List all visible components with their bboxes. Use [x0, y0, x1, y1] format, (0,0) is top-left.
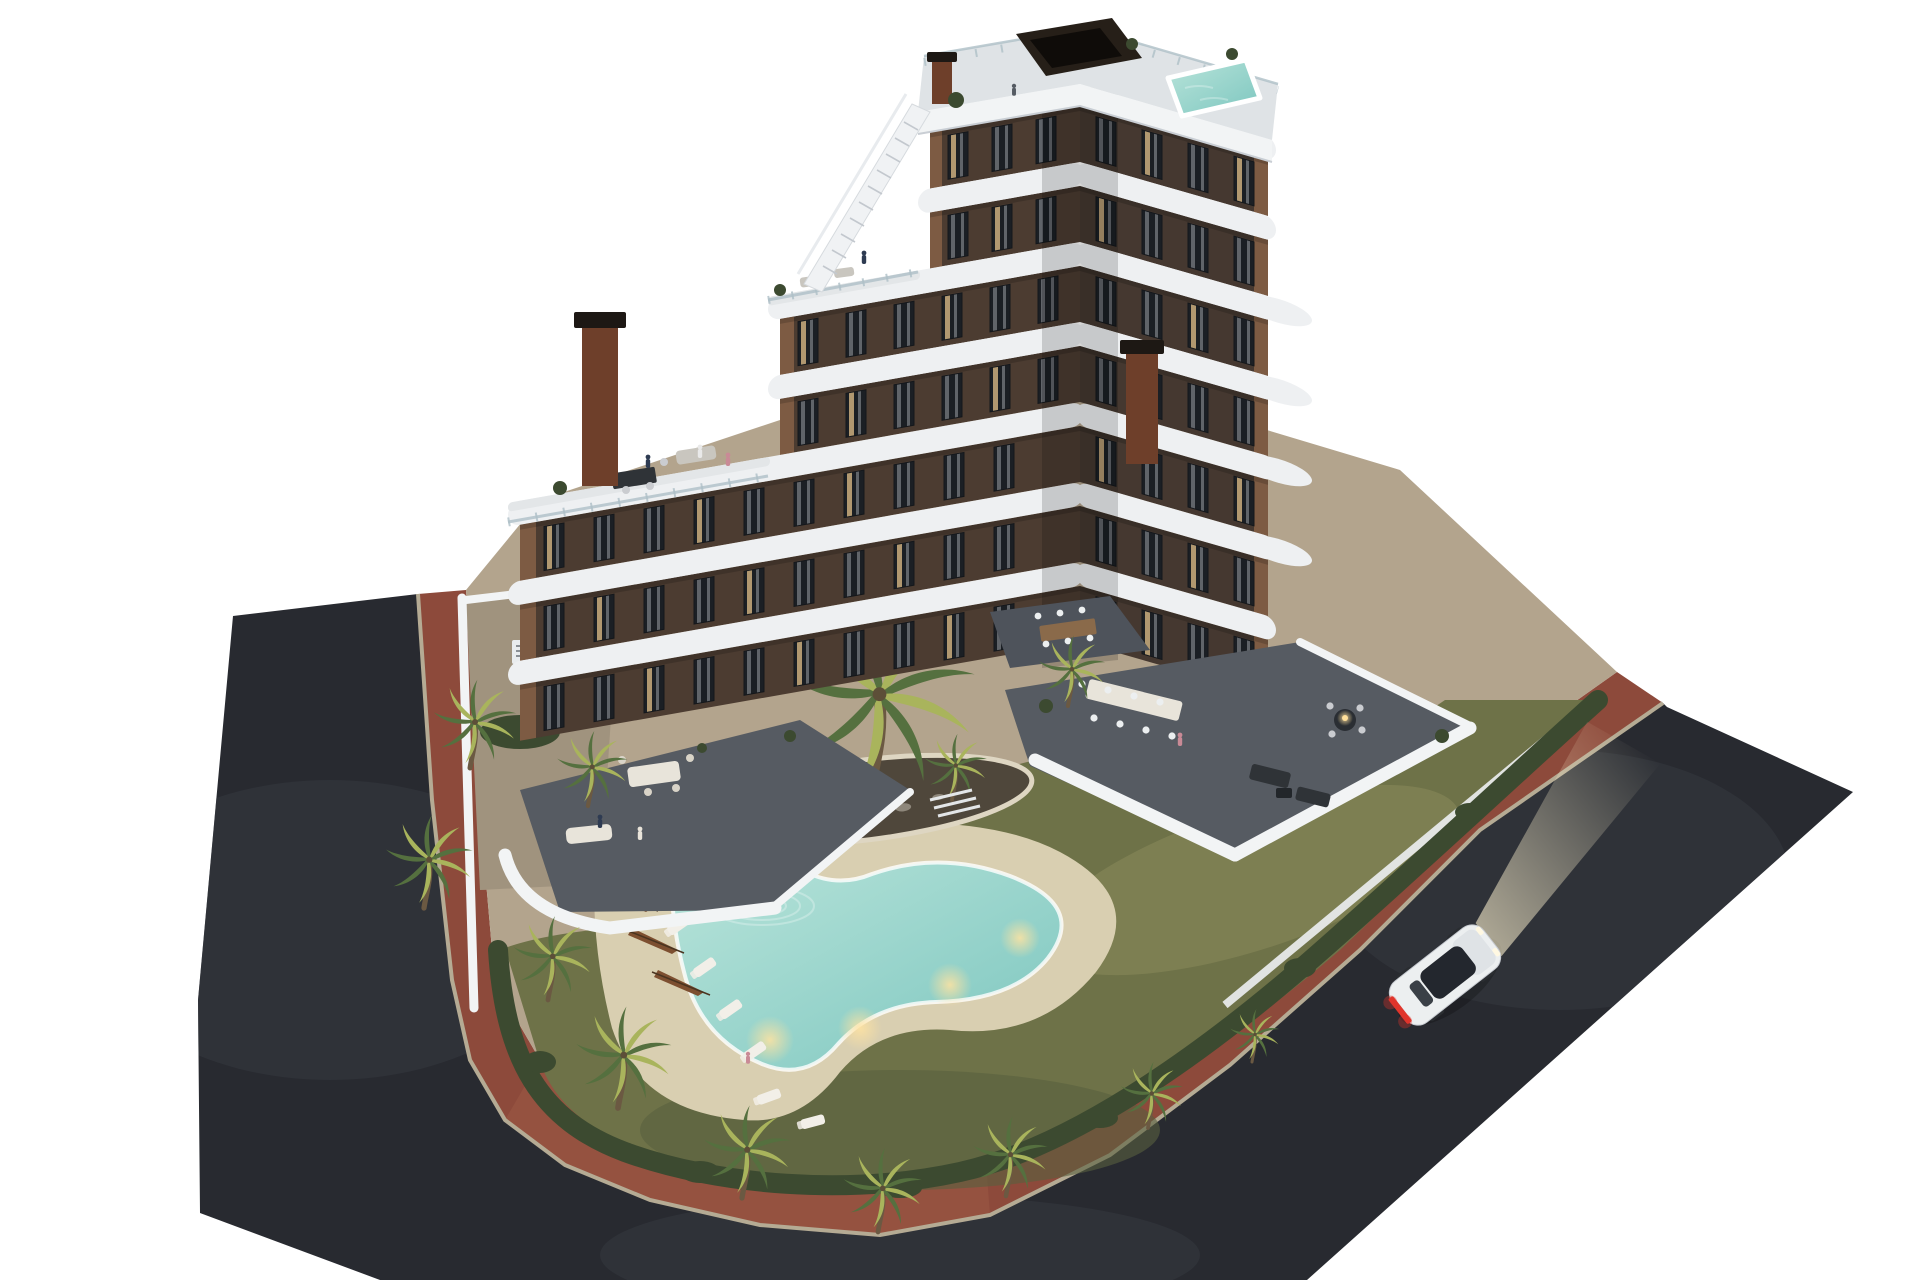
- coffee-table: [1276, 788, 1292, 798]
- person: [1178, 733, 1183, 746]
- chimney: [582, 326, 618, 486]
- person: [746, 1052, 750, 1064]
- person: [698, 445, 703, 458]
- person: [862, 251, 867, 264]
- person: [726, 453, 731, 466]
- person: [646, 455, 651, 468]
- person: [638, 827, 643, 840]
- person: [598, 815, 603, 828]
- render-canvas: [0, 0, 1920, 1280]
- terrace-plant: [553, 481, 567, 495]
- roof-plant: [948, 92, 964, 108]
- roof-plant: [1126, 38, 1138, 50]
- person: [1012, 84, 1016, 96]
- architectural-render: [0, 0, 1920, 1280]
- inner-corner-shadow: [1042, 82, 1118, 668]
- roof-plant: [1226, 48, 1238, 60]
- chimney: [1126, 352, 1158, 464]
- terrace-plant: [774, 284, 786, 296]
